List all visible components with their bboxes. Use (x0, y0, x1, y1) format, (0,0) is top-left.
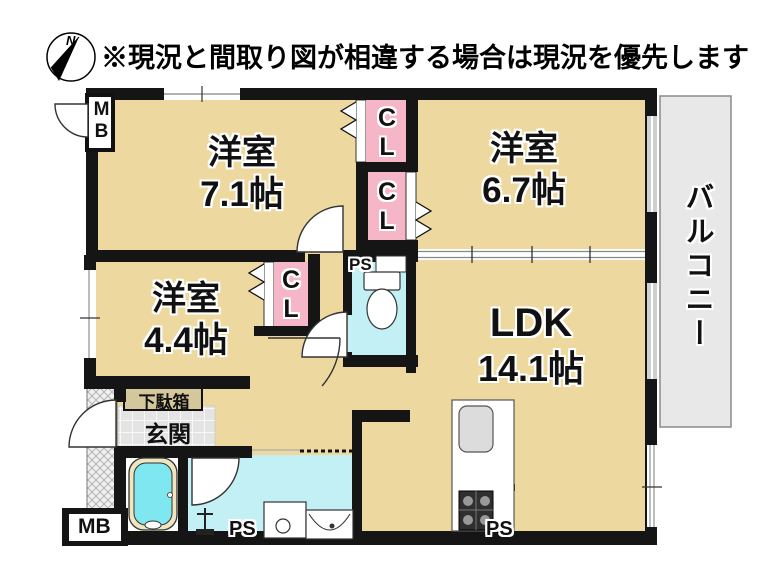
pipe-space-box (376, 256, 406, 272)
label-room-7-1: 洋室 7.1帖 (142, 132, 342, 216)
label-ldk: LDK 14.1帖 (431, 300, 631, 392)
label-shoe-cabinet: 下駄箱 (127, 388, 201, 413)
room-name: 洋室 (86, 278, 286, 320)
room-name: 洋室 (142, 132, 342, 174)
label-balcony: バルコニー (676, 182, 718, 352)
kitchen-sink (459, 406, 493, 452)
label-pipe-space-kitchen: PS (486, 518, 513, 541)
label-room-4-4: 洋室 4.4帖 (86, 278, 286, 362)
room-name: LDK (431, 300, 631, 346)
room-area: 7.1帖 (142, 174, 342, 216)
compass-north-label: N (66, 33, 75, 48)
disclaimer-note: ※現況と間取り図が相違する場合は現況を優先します (101, 36, 749, 75)
room-area: 6.7帖 (424, 170, 624, 212)
label-meter-box-top: MB (91, 99, 112, 143)
label-room-6-7: 洋室 6.7帖 (424, 128, 624, 212)
room-area: 4.4帖 (86, 320, 286, 362)
kitchen-counter (452, 400, 514, 531)
door-arc (55, 104, 88, 137)
room-name: 洋室 (424, 128, 624, 170)
room-area: 14.1帖 (431, 346, 631, 392)
washer-pan-fixture (264, 502, 306, 538)
door-arc (69, 400, 116, 447)
label-meter-box-bottom: MB (78, 515, 111, 539)
label-entrance: 玄関 (124, 415, 212, 449)
label-closet-1: CL (373, 104, 400, 162)
label-pipe-space-washroom: PS (229, 518, 256, 541)
label-pipe-space-toilet: PS (349, 255, 372, 275)
floorplan-page: ※現況と間取り図が相違する場合は現況を優先します N 洋室 7.1帖 洋室 6.… (0, 0, 768, 572)
toilet-fixture (364, 272, 400, 329)
label-closet-2: CL (373, 178, 400, 236)
bathtub-fixture (129, 458, 177, 530)
washbasin-fixture (306, 510, 353, 539)
label-closet-3: CL (277, 266, 304, 324)
